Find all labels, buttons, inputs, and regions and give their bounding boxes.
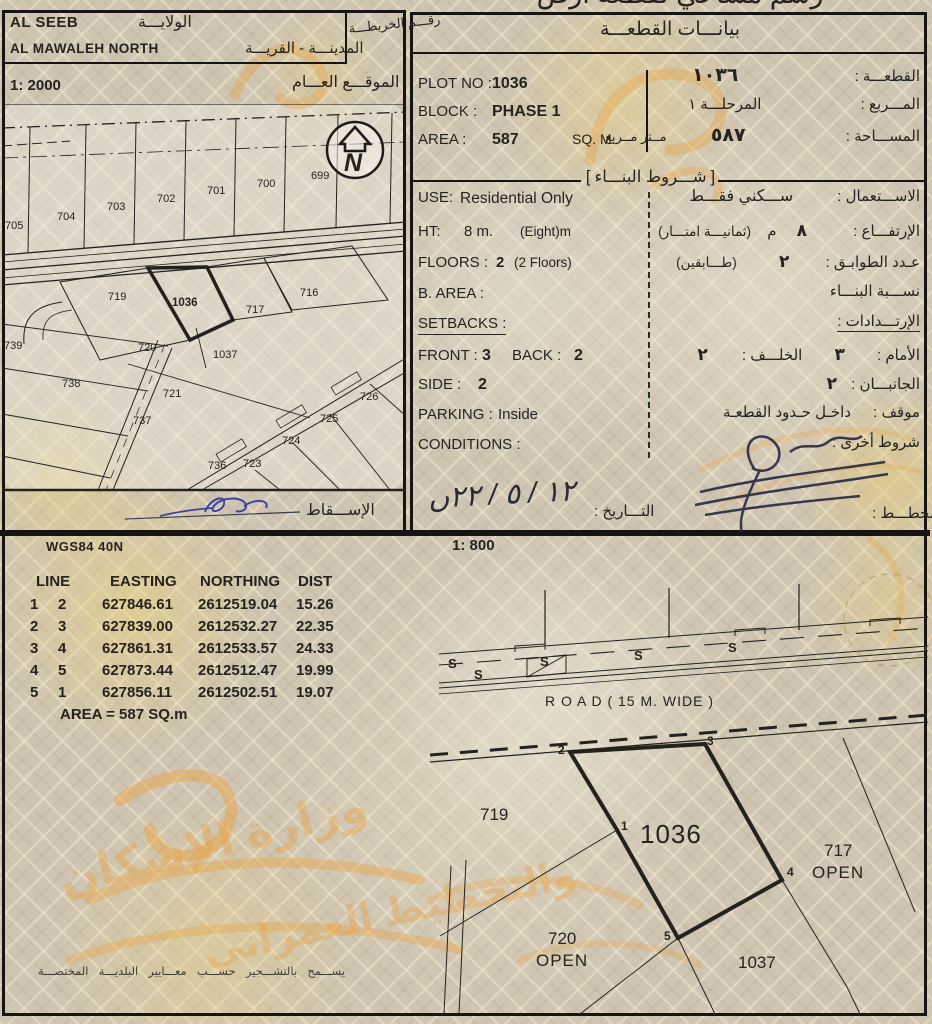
block-value-ar: المرحلـــة ١ xyxy=(688,96,761,113)
back-label-ar: الخلـــف : xyxy=(742,347,802,364)
signature-projection xyxy=(115,485,315,533)
footer-note: يســـمح بالتشـــجير حســـب معـــايير الب… xyxy=(38,966,345,979)
vertex-1: 1 xyxy=(621,820,628,833)
vertex-4: 4 xyxy=(787,866,794,879)
floors-value: 2 xyxy=(496,255,504,272)
city-value: AL MAWALEH NORTH xyxy=(10,42,159,57)
floors-row-ar: عـدد الطوابـق : ٢ (طـــابقين) xyxy=(676,253,920,272)
side-label: SIDE : xyxy=(418,377,461,394)
floors-label-ar: عـدد الطوابـق : xyxy=(826,254,920,271)
sewer-m-mark: S xyxy=(728,641,737,655)
plot-no-value: 1036 xyxy=(492,75,528,93)
vertex-3: 3 xyxy=(707,735,714,748)
built-area-label-ar: نســـبة البنـــاء xyxy=(830,283,920,300)
plot-label-716: 716 xyxy=(300,287,318,299)
use-value-ar: ســـكني فقـــط xyxy=(689,188,793,205)
back-value-ar: ٢ xyxy=(697,345,707,364)
city-label: المدينـــة - القريـــة xyxy=(245,41,364,58)
building-conditions-title: شـــروط البنـــاء xyxy=(590,168,710,186)
plot-label-721: 721 xyxy=(163,388,181,400)
plot-data-section-title: بيانـــات القطعـــة xyxy=(420,20,920,41)
plot-label-699: 699 xyxy=(311,170,329,182)
projection-label: الإســـقاط xyxy=(306,502,375,520)
side-value: 2 xyxy=(478,376,487,394)
plot-label-1036: 1036 xyxy=(172,297,198,310)
date-label: التـــاريخ : xyxy=(594,504,654,521)
plot-label-700: 700 xyxy=(257,178,275,190)
height-note: (Eight)m xyxy=(520,225,571,240)
height-row-ar: الإرتفـــاع : ٨ م (ثمانيـــة امتـــار) xyxy=(658,222,920,241)
parking-label-ar: موقف : xyxy=(873,404,920,421)
vertex-2: 2 xyxy=(558,744,565,757)
parking-label: PARKING : xyxy=(418,407,493,424)
front-label-ar: الأمام : xyxy=(877,347,920,364)
detail-plot-717: 717 xyxy=(824,842,852,861)
setbacks-label-ar: الإرتـــدادات : xyxy=(837,313,920,332)
detail-plot-720-status: OPEN xyxy=(536,952,588,971)
area-label: AREA : xyxy=(418,132,466,149)
block-value: PHASE 1 xyxy=(492,103,560,121)
block-label: BLOCK : xyxy=(418,104,477,121)
floors-note: (2 Floors) xyxy=(514,256,572,271)
floors-label: FLOORS : xyxy=(418,255,488,272)
frame-line xyxy=(410,52,926,54)
detail-plot-720: 720 xyxy=(548,930,576,949)
detail-plot-1037: 1037 xyxy=(738,954,776,973)
side-label-ar: الجانبـــان : xyxy=(851,376,920,393)
plot-label-1037: 1037 xyxy=(213,349,237,361)
plot-label-723: 723 xyxy=(243,458,261,470)
area-value-ar: ٥٨٧ xyxy=(711,125,746,146)
front-value: 3 xyxy=(482,347,491,365)
height-value: 8 m. xyxy=(464,224,493,241)
front-back-row-ar: الأمام : ٣ الخلـــف : ٢ xyxy=(697,346,920,365)
parking-row-ar: موقف : داخـل حـدود القطعـة xyxy=(723,405,920,422)
document-title-clipped: رسم مساحي لقطعة أرض xyxy=(480,0,880,10)
floors-value-ar: ٢ xyxy=(779,252,789,271)
use-label: USE: xyxy=(418,190,453,207)
back-label: BACK : xyxy=(512,348,561,365)
bracket-close: ] xyxy=(711,168,716,186)
plot-label-703: 703 xyxy=(107,201,125,213)
frame-line xyxy=(410,12,413,534)
wilaya-label: الولايـــة xyxy=(138,14,192,32)
building-conditions-header: [شـــروط البنـــاء] xyxy=(581,168,720,186)
plot-label-724: 724 xyxy=(282,435,300,447)
dashed-divider xyxy=(648,192,650,458)
plot-label-704: 704 xyxy=(57,211,75,223)
plot-label-701: 701 xyxy=(207,185,225,197)
plot-label-720: 720 xyxy=(138,342,156,354)
overview-scale: 1: 2000 xyxy=(10,78,61,95)
north-letter: N xyxy=(344,150,362,178)
block-label-ar: المـــربع : xyxy=(861,96,920,113)
wilaya-value: AL SEEB xyxy=(10,15,78,32)
plot-label-717: 717 xyxy=(246,304,264,316)
plot-label-719: 719 xyxy=(108,291,126,303)
frame-line xyxy=(2,104,404,105)
parking-value: Inside xyxy=(498,407,538,424)
built-area-row-ar: نســـبة البنـــاء xyxy=(830,284,920,301)
planner-label: المخطـــط : xyxy=(872,506,932,523)
plot-label-725: 725 xyxy=(320,413,338,425)
floors-note-ar: (طـــابقين) xyxy=(676,255,737,270)
road-label: R O A D ( 15 M. WIDE ) xyxy=(545,694,714,709)
built-area-label: B. AREA : xyxy=(418,286,484,303)
height-unit-ar: م xyxy=(767,223,776,240)
frame-line xyxy=(2,62,347,64)
plot-label-736: 736 xyxy=(208,460,226,472)
plot-no-value-ar: ١٠٣٦ xyxy=(692,65,738,86)
setbacks-row-ar: الإرتـــدادات : xyxy=(837,314,920,331)
detail-plot-719: 719 xyxy=(480,806,508,825)
frame-line xyxy=(410,12,926,15)
height-note-ar: (ثمانيـــة امتـــار) xyxy=(658,224,751,239)
area-unit-ar: مــتر مــربع xyxy=(605,129,667,144)
side-value-ar: ٢ xyxy=(827,374,837,393)
detail-plot-1036: 1036 xyxy=(640,820,702,849)
setbacks-label: SETBACKS : xyxy=(418,316,506,335)
conditions-label: CONDITIONS : xyxy=(418,437,521,454)
use-value: Residential Only xyxy=(460,190,573,207)
plot-label-737: 737 xyxy=(133,415,151,427)
sewer-m-mark: S xyxy=(634,649,643,663)
height-label-ar: الإرتفـــاع : xyxy=(853,223,920,240)
detail-plot-717-status: OPEN xyxy=(812,864,864,883)
area-row-ar: المســـاحة : ٥٨٧ مــتر مــربع xyxy=(605,126,920,147)
frame-line xyxy=(924,12,927,534)
section-rule xyxy=(718,180,925,182)
sewer-m-mark: S xyxy=(474,668,483,682)
back-value: 2 xyxy=(574,347,583,365)
use-row-ar: الاســـتعمال : ســـكني فقـــط xyxy=(689,188,920,206)
area-label-ar: المســـاحة : xyxy=(846,128,920,145)
block-row-ar: المـــربع : المرحلـــة ١ xyxy=(688,97,920,114)
site-plan-label: الموقـــع العـــام xyxy=(292,74,399,92)
side-row-ar: الجانبـــان : ٢ xyxy=(827,375,920,394)
sewer-m-mark: S xyxy=(540,655,549,669)
front-label: FRONT : xyxy=(418,348,478,365)
signature-planner xyxy=(660,425,890,535)
section-rule xyxy=(413,180,581,182)
plot-label-705: 705 xyxy=(5,220,23,232)
plot-label-726: 726 xyxy=(360,391,378,403)
height-label: HT: xyxy=(418,224,441,241)
vertex-5: 5 xyxy=(664,930,671,943)
parking-value-ar: داخـل حـدود القطعـة xyxy=(723,404,851,421)
plot-no-row-ar: القطعـــة : ١٠٣٦ xyxy=(692,66,920,87)
plot-label-702: 702 xyxy=(157,193,175,205)
plot-label-ar: القطعـــة : xyxy=(855,68,920,85)
plot-label-738: 738 xyxy=(62,378,80,390)
front-value-ar: ٣ xyxy=(834,345,844,364)
krooki-survey-document: وزارة الإسكان والتخطيط العمراني AL SEEB … xyxy=(0,0,932,1024)
use-label-ar: الاســـتعمال : xyxy=(837,188,920,205)
plot-label-739: 739 xyxy=(4,340,22,352)
plot-no-label: PLOT NO : xyxy=(418,76,492,93)
height-value-ar: ٨ xyxy=(797,221,807,240)
area-value: 587 xyxy=(492,131,519,149)
sewer-m-mark: S xyxy=(448,657,457,671)
detail-map xyxy=(2,536,928,1018)
